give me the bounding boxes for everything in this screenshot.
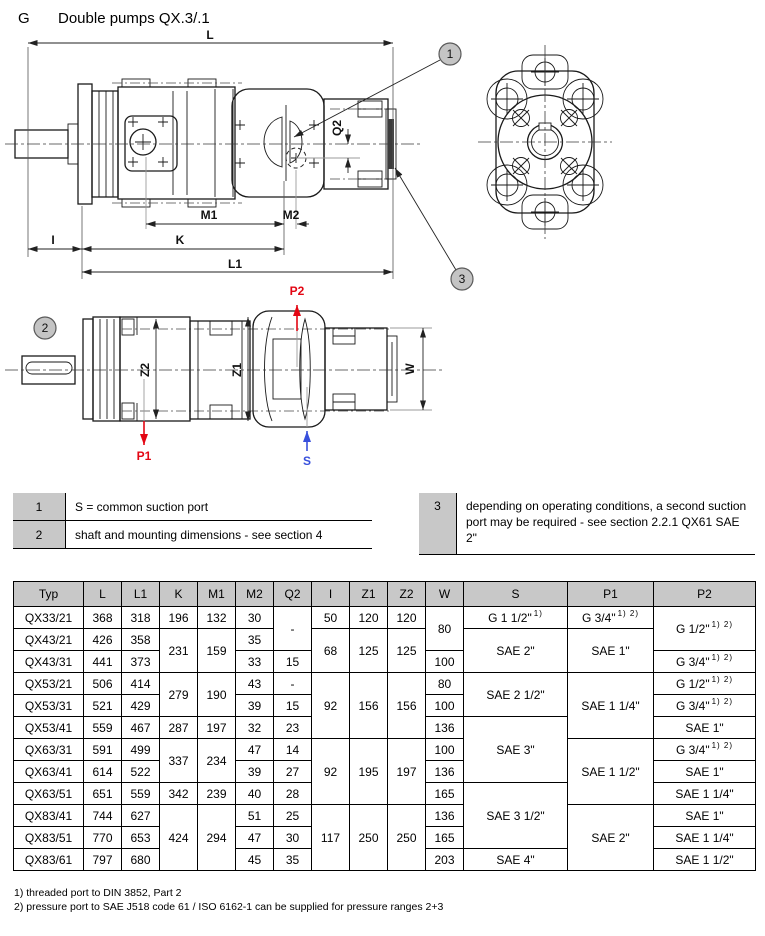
notes-right: 3 depending on operating conditions, a s… bbox=[419, 493, 755, 555]
side-view-drawing: L M1 M2 I K L1 Q2 1 3 bbox=[0, 29, 765, 294]
cell: 414 bbox=[122, 673, 160, 695]
cell: 35 bbox=[274, 849, 312, 871]
note-1-text: S = common suction port bbox=[66, 493, 372, 520]
cell: 125 bbox=[388, 629, 426, 673]
col-header-q2: Q2 bbox=[274, 582, 312, 607]
cell: 32 bbox=[236, 717, 274, 739]
col-header-z2: Z2 bbox=[388, 582, 426, 607]
cell: SAE 2" bbox=[464, 629, 568, 673]
cell: G 1/2"1) 2) bbox=[654, 607, 756, 651]
cell: SAE 1 1/4" bbox=[568, 673, 654, 739]
cell: 368 bbox=[84, 607, 122, 629]
note-2: 2 shaft and mounting dimensions - see se… bbox=[13, 521, 372, 549]
cell: SAE 4" bbox=[464, 849, 568, 871]
cell: 30 bbox=[274, 827, 312, 849]
cell: 43 bbox=[236, 673, 274, 695]
callout-2-label: 2 bbox=[42, 321, 49, 335]
cell-typ: QX63/51 bbox=[14, 783, 84, 805]
dim-label-I: I bbox=[51, 233, 54, 247]
cell: 39 bbox=[236, 695, 274, 717]
cell: 337 bbox=[160, 739, 198, 783]
pump-side-view bbox=[5, 79, 420, 207]
cell-typ: QX43/21 bbox=[14, 629, 84, 651]
dim-label-Z2: Z2 bbox=[138, 363, 152, 377]
shaft-keyway bbox=[26, 362, 72, 374]
col-header-m1: M1 bbox=[198, 582, 236, 607]
dimension-table: TypLL1KM1M2Q2IZ1Z2WSP1P2 QX33/2136831819… bbox=[13, 581, 756, 871]
cell: SAE 1 1/4" bbox=[654, 827, 756, 849]
col-header-k: K bbox=[160, 582, 198, 607]
footnote-1: 1) threaded port to DIN 3852, Part 2 bbox=[14, 886, 765, 900]
cell: 80 bbox=[426, 673, 464, 695]
cell: G 1/2"1) 2) bbox=[654, 673, 756, 695]
cell: SAE 3" bbox=[464, 717, 568, 783]
cell: 100 bbox=[426, 651, 464, 673]
cell: 132 bbox=[198, 607, 236, 629]
cell: 653 bbox=[122, 827, 160, 849]
col-header-l1: L1 bbox=[122, 582, 160, 607]
cell: 100 bbox=[426, 739, 464, 761]
cell-typ: QX83/61 bbox=[14, 849, 84, 871]
cell: SAE 1" bbox=[654, 805, 756, 827]
top-view-drawing: Z2 Z1 W P2 P1 S 2 bbox=[0, 279, 470, 479]
cell: 499 bbox=[122, 739, 160, 761]
cell: 92 bbox=[312, 739, 350, 805]
cell: 294 bbox=[198, 805, 236, 871]
col-header-l: L bbox=[84, 582, 122, 607]
cell: SAE 1" bbox=[654, 761, 756, 783]
note-2-text: shaft and mounting dimensions - see sect… bbox=[66, 521, 372, 548]
cell: 120 bbox=[350, 607, 388, 629]
cell: SAE 1 1/4" bbox=[654, 783, 756, 805]
dim-label-W: W bbox=[403, 363, 417, 375]
cell: 45 bbox=[236, 849, 274, 871]
cell: 429 bbox=[122, 695, 160, 717]
cell: 342 bbox=[160, 783, 198, 805]
note-3-number: 3 bbox=[419, 493, 457, 554]
col-header-p1: P1 bbox=[568, 582, 654, 607]
dim-label-L1: L1 bbox=[228, 257, 242, 271]
cell: 33 bbox=[236, 651, 274, 673]
cell: 156 bbox=[388, 673, 426, 739]
cell: 15 bbox=[274, 651, 312, 673]
cell: 614 bbox=[84, 761, 122, 783]
col-header-typ: Typ bbox=[14, 582, 84, 607]
cell-typ: QX43/31 bbox=[14, 651, 84, 673]
cell: 50 bbox=[312, 607, 350, 629]
table-row: QX83/417446274242945125117250250136SAE 2… bbox=[14, 805, 756, 827]
note-3-text: depending on operating conditions, a sec… bbox=[457, 493, 755, 554]
cell: 279 bbox=[160, 673, 198, 717]
cell: G 3/4"1) 2) bbox=[654, 739, 756, 761]
technical-drawings: L M1 M2 I K L1 Q2 1 3 bbox=[0, 29, 765, 481]
cell: 651 bbox=[84, 783, 122, 805]
note-3: 3 depending on operating conditions, a s… bbox=[419, 493, 755, 555]
cell: 426 bbox=[84, 629, 122, 651]
cell: 30 bbox=[236, 607, 274, 629]
table-row: QX43/214263582311593568125125SAE 2"SAE 1… bbox=[14, 629, 756, 651]
cell: G 3/4"1) 2) bbox=[654, 651, 756, 673]
cell: 27 bbox=[274, 761, 312, 783]
notes-section: 1 S = common suction port 2 shaft and mo… bbox=[13, 493, 765, 555]
cell: 40 bbox=[236, 783, 274, 805]
cell: 136 bbox=[426, 717, 464, 739]
cell: 190 bbox=[198, 673, 236, 717]
cell-typ: QX83/41 bbox=[14, 805, 84, 827]
cell: 250 bbox=[350, 805, 388, 871]
cell: 591 bbox=[84, 739, 122, 761]
cell: 117 bbox=[312, 805, 350, 871]
note-1-number: 1 bbox=[13, 493, 66, 520]
cell: 136 bbox=[426, 805, 464, 827]
cell: 467 bbox=[122, 717, 160, 739]
cell: G 3/4"1) 2) bbox=[568, 607, 654, 629]
cell: G 1 1/2"1) bbox=[464, 607, 568, 629]
dim-label-M2: M2 bbox=[283, 208, 300, 222]
cell-typ: QX83/51 bbox=[14, 827, 84, 849]
cell: 441 bbox=[84, 651, 122, 673]
cell-typ: QX63/41 bbox=[14, 761, 84, 783]
cell-typ: QX53/21 bbox=[14, 673, 84, 695]
dim-label-Q2: Q2 bbox=[330, 120, 344, 136]
cell: SAE 2 1/2" bbox=[464, 673, 568, 717]
cell: 68 bbox=[312, 629, 350, 673]
cell: SAE 1 1/2" bbox=[568, 739, 654, 805]
cell: 165 bbox=[426, 783, 464, 805]
table-row: QX53/2150641427919043-9215615680SAE 2 1/… bbox=[14, 673, 756, 695]
cell: SAE 1" bbox=[654, 717, 756, 739]
port-label-P2: P2 bbox=[290, 284, 305, 298]
cell: 15 bbox=[274, 695, 312, 717]
cell: 195 bbox=[350, 739, 388, 805]
cell: 358 bbox=[122, 629, 160, 651]
cell: 196 bbox=[160, 607, 198, 629]
note-1: 1 S = common suction port bbox=[13, 493, 372, 521]
cell: 156 bbox=[350, 673, 388, 739]
pump-top-view bbox=[5, 311, 445, 427]
cell: 159 bbox=[198, 629, 236, 673]
cell-typ: QX33/21 bbox=[14, 607, 84, 629]
dim-label-Z1: Z1 bbox=[230, 363, 244, 377]
cell: 506 bbox=[84, 673, 122, 695]
callout-1-label: 1 bbox=[447, 47, 454, 61]
cell: 318 bbox=[122, 607, 160, 629]
footnote-2: 2) pressure port to SAE J518 code 61 / I… bbox=[14, 900, 765, 914]
flange-front-view bbox=[478, 45, 612, 239]
cell: 287 bbox=[160, 717, 198, 739]
dim-label-L: L bbox=[206, 29, 213, 42]
table-body: QX33/2136831819613230-5012012080G 1 1/2"… bbox=[14, 607, 756, 871]
cell: 680 bbox=[122, 849, 160, 871]
cell: 197 bbox=[388, 739, 426, 805]
cell: 165 bbox=[426, 827, 464, 849]
cell: 197 bbox=[198, 717, 236, 739]
cell: G 3/4"1) 2) bbox=[654, 695, 756, 717]
cell: 559 bbox=[122, 783, 160, 805]
col-header-z1: Z1 bbox=[350, 582, 388, 607]
notes-left: 1 S = common suction port 2 shaft and mo… bbox=[13, 493, 372, 549]
cell: 80 bbox=[426, 607, 464, 651]
cell: 627 bbox=[122, 805, 160, 827]
cell: 136 bbox=[426, 761, 464, 783]
col-header-i: I bbox=[312, 582, 350, 607]
cell: 47 bbox=[236, 827, 274, 849]
cell: 39 bbox=[236, 761, 274, 783]
cell: 28 bbox=[274, 783, 312, 805]
cell: 797 bbox=[84, 849, 122, 871]
col-header-m2: M2 bbox=[236, 582, 274, 607]
cell: 373 bbox=[122, 651, 160, 673]
page-title-text: Double pumps QX.3/.1 bbox=[58, 10, 210, 27]
cell: 239 bbox=[198, 783, 236, 805]
cell: - bbox=[274, 607, 312, 651]
cell: 51 bbox=[236, 805, 274, 827]
footnotes: 1) threaded port to DIN 3852, Part 2 2) … bbox=[14, 886, 765, 914]
col-header-w: W bbox=[426, 582, 464, 607]
table-header-row: TypLL1KM1M2Q2IZ1Z2WSP1P2 bbox=[14, 582, 756, 607]
cell: 100 bbox=[426, 695, 464, 717]
cell-typ: QX53/31 bbox=[14, 695, 84, 717]
cell: 521 bbox=[84, 695, 122, 717]
cell: SAE 1 1/2" bbox=[654, 849, 756, 871]
callout-2: 2 bbox=[34, 317, 56, 339]
dimensions-top-view: Z2 Z1 W bbox=[138, 317, 432, 421]
cell: 125 bbox=[350, 629, 388, 673]
page-title: G Double pumps QX.3/.1 bbox=[0, 0, 765, 27]
cell: 231 bbox=[160, 629, 198, 673]
cell: 770 bbox=[84, 827, 122, 849]
section-letter: G bbox=[18, 10, 32, 27]
cell: 522 bbox=[122, 761, 160, 783]
port-label-S: S bbox=[303, 454, 311, 468]
cell: 35 bbox=[236, 629, 274, 651]
cell: 14 bbox=[274, 739, 312, 761]
cell: 203 bbox=[426, 849, 464, 871]
cell: 92 bbox=[312, 673, 350, 739]
callout-1: 1 bbox=[294, 43, 461, 137]
cell: 47 bbox=[236, 739, 274, 761]
cell-typ: QX63/31 bbox=[14, 739, 84, 761]
dim-label-M1: M1 bbox=[201, 208, 218, 222]
cell: 234 bbox=[198, 739, 236, 783]
cell: SAE 2" bbox=[568, 805, 654, 871]
port-label-P1: P1 bbox=[137, 449, 152, 463]
datasheet-page: { "page": {"section_letter": "G", "title… bbox=[0, 0, 765, 936]
col-header-p2: P2 bbox=[654, 582, 756, 607]
cell-typ: QX53/41 bbox=[14, 717, 84, 739]
cell: SAE 3 1/2" bbox=[464, 783, 568, 849]
cell: 23 bbox=[274, 717, 312, 739]
cell: 559 bbox=[84, 717, 122, 739]
table-row: QX63/31591499337234471492195197100SAE 1 … bbox=[14, 739, 756, 761]
cell: SAE 1" bbox=[568, 629, 654, 673]
dim-label-K: K bbox=[176, 233, 185, 247]
table-row: QX33/2136831819613230-5012012080G 1 1/2"… bbox=[14, 607, 756, 629]
table-header: TypLL1KM1M2Q2IZ1Z2WSP1P2 bbox=[14, 582, 756, 607]
dimensions-side-view: L M1 M2 I K L1 Q2 bbox=[28, 29, 393, 279]
cell: 120 bbox=[388, 607, 426, 629]
cell: 424 bbox=[160, 805, 198, 871]
col-header-s: S bbox=[464, 582, 568, 607]
cell: 744 bbox=[84, 805, 122, 827]
cell: 250 bbox=[388, 805, 426, 871]
note-2-number: 2 bbox=[13, 521, 66, 548]
cell: 25 bbox=[274, 805, 312, 827]
cell: - bbox=[274, 673, 312, 695]
callout-3: 3 bbox=[395, 168, 473, 290]
